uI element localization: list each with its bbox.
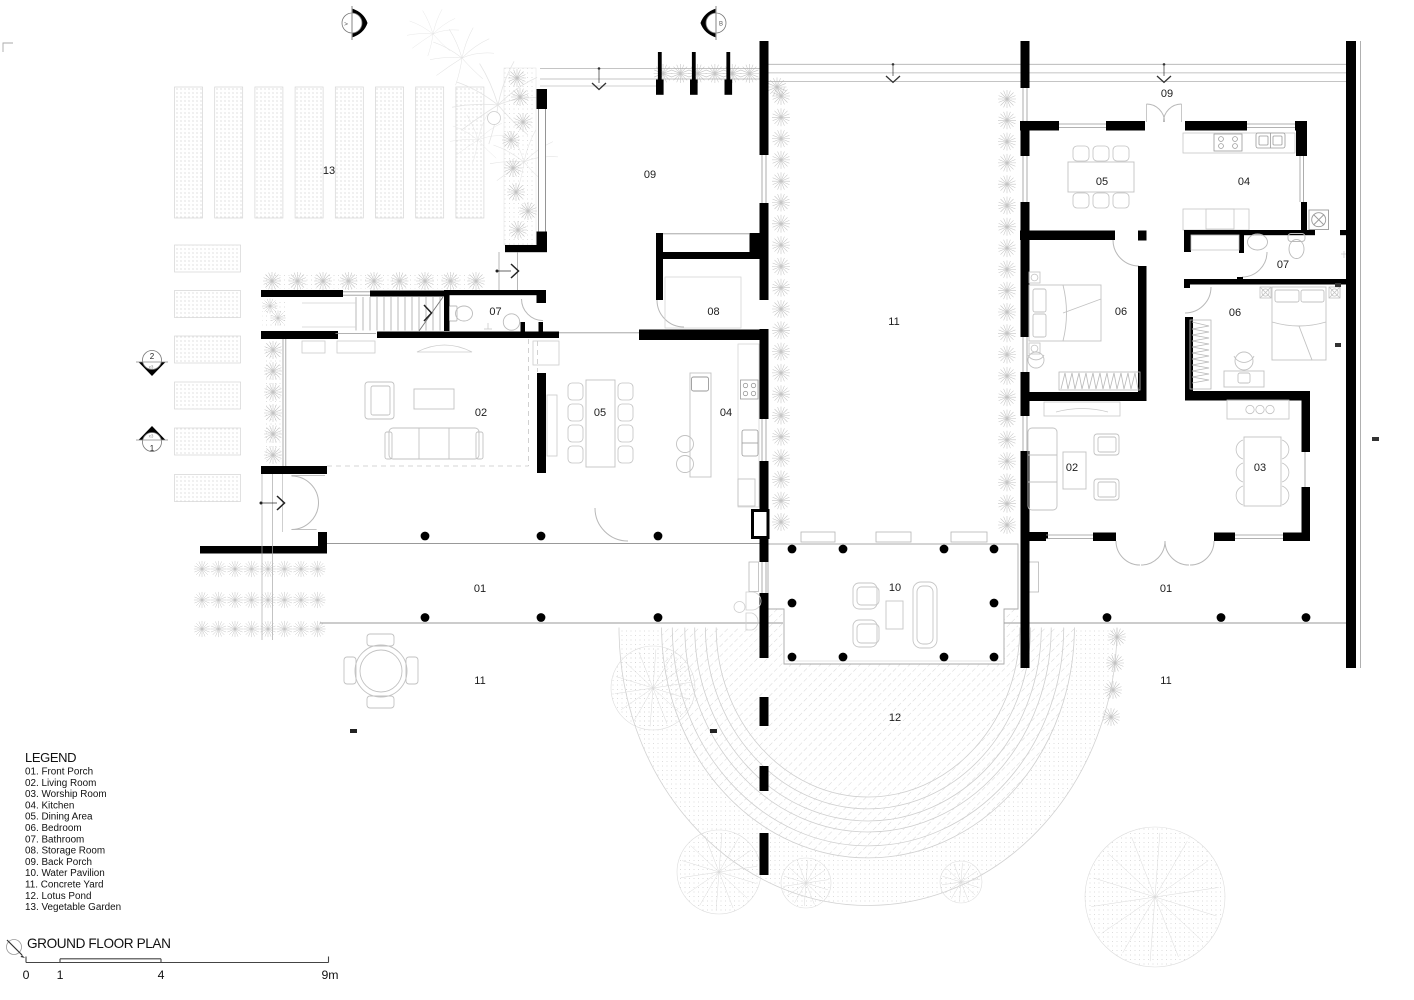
svg-text:08: 08: [707, 306, 719, 318]
svg-text:13. Vegetable Garden: 13. Vegetable Garden: [25, 902, 121, 913]
svg-text:B: B: [719, 22, 723, 28]
svg-text:02. Living Room: 02. Living Room: [25, 778, 96, 789]
svg-text:x3: x3: [149, 365, 154, 370]
svg-text:01. Front Porch: 01. Front Porch: [25, 767, 93, 778]
svg-text:>: >: [344, 21, 348, 28]
svg-text:02: 02: [475, 407, 487, 419]
svg-text:03. Worship Room: 03. Worship Room: [25, 789, 107, 800]
svg-text:07: 07: [489, 306, 501, 318]
svg-text:1: 1: [150, 444, 155, 453]
svg-text:06: 06: [1229, 307, 1241, 319]
svg-text:05: 05: [1096, 176, 1108, 188]
svg-text:01: 01: [1160, 583, 1172, 595]
svg-text:05: 05: [594, 407, 606, 419]
svg-text:13: 13: [323, 165, 335, 177]
svg-text:04: 04: [720, 407, 732, 419]
svg-text:9m: 9m: [321, 968, 338, 982]
svg-text:07: 07: [1277, 259, 1289, 271]
svg-text:x3: x3: [149, 434, 154, 439]
svg-text:09. Back Porch: 09. Back Porch: [25, 857, 92, 868]
svg-text:12: 12: [889, 712, 901, 724]
svg-text:05. Dining Area: 05. Dining Area: [25, 812, 93, 823]
svg-text:0: 0: [23, 968, 30, 982]
svg-text:11. Concrete Yard: 11. Concrete Yard: [25, 880, 104, 891]
svg-text:06: 06: [1115, 306, 1127, 318]
svg-text:08. Storage Room: 08. Storage Room: [25, 846, 105, 857]
svg-text:11: 11: [888, 316, 899, 328]
svg-text:09: 09: [1161, 88, 1173, 100]
svg-text:LEGEND: LEGEND: [25, 750, 76, 765]
svg-text:12. Lotus Pond: 12. Lotus Pond: [25, 891, 91, 902]
svg-text:04: 04: [1238, 176, 1250, 188]
svg-text:02: 02: [1066, 462, 1078, 474]
svg-text:11: 11: [1160, 675, 1171, 687]
svg-text:10. Water Pavilion: 10. Water Pavilion: [25, 868, 105, 879]
svg-text:06. Bedroom: 06. Bedroom: [25, 823, 82, 834]
svg-text:2: 2: [150, 352, 155, 361]
svg-text:11: 11: [474, 675, 485, 687]
svg-text:09: 09: [644, 169, 656, 181]
svg-text:04. Kitchen: 04. Kitchen: [25, 800, 74, 811]
svg-text:GROUND FLOOR PLAN: GROUND FLOOR PLAN: [27, 936, 171, 951]
svg-text:01: 01: [474, 583, 486, 595]
svg-text:4: 4: [158, 968, 165, 982]
svg-text:07. Bathroom: 07. Bathroom: [25, 834, 84, 845]
svg-text:03: 03: [1254, 462, 1266, 474]
svg-text:1: 1: [57, 968, 64, 982]
svg-text:10: 10: [889, 582, 901, 594]
